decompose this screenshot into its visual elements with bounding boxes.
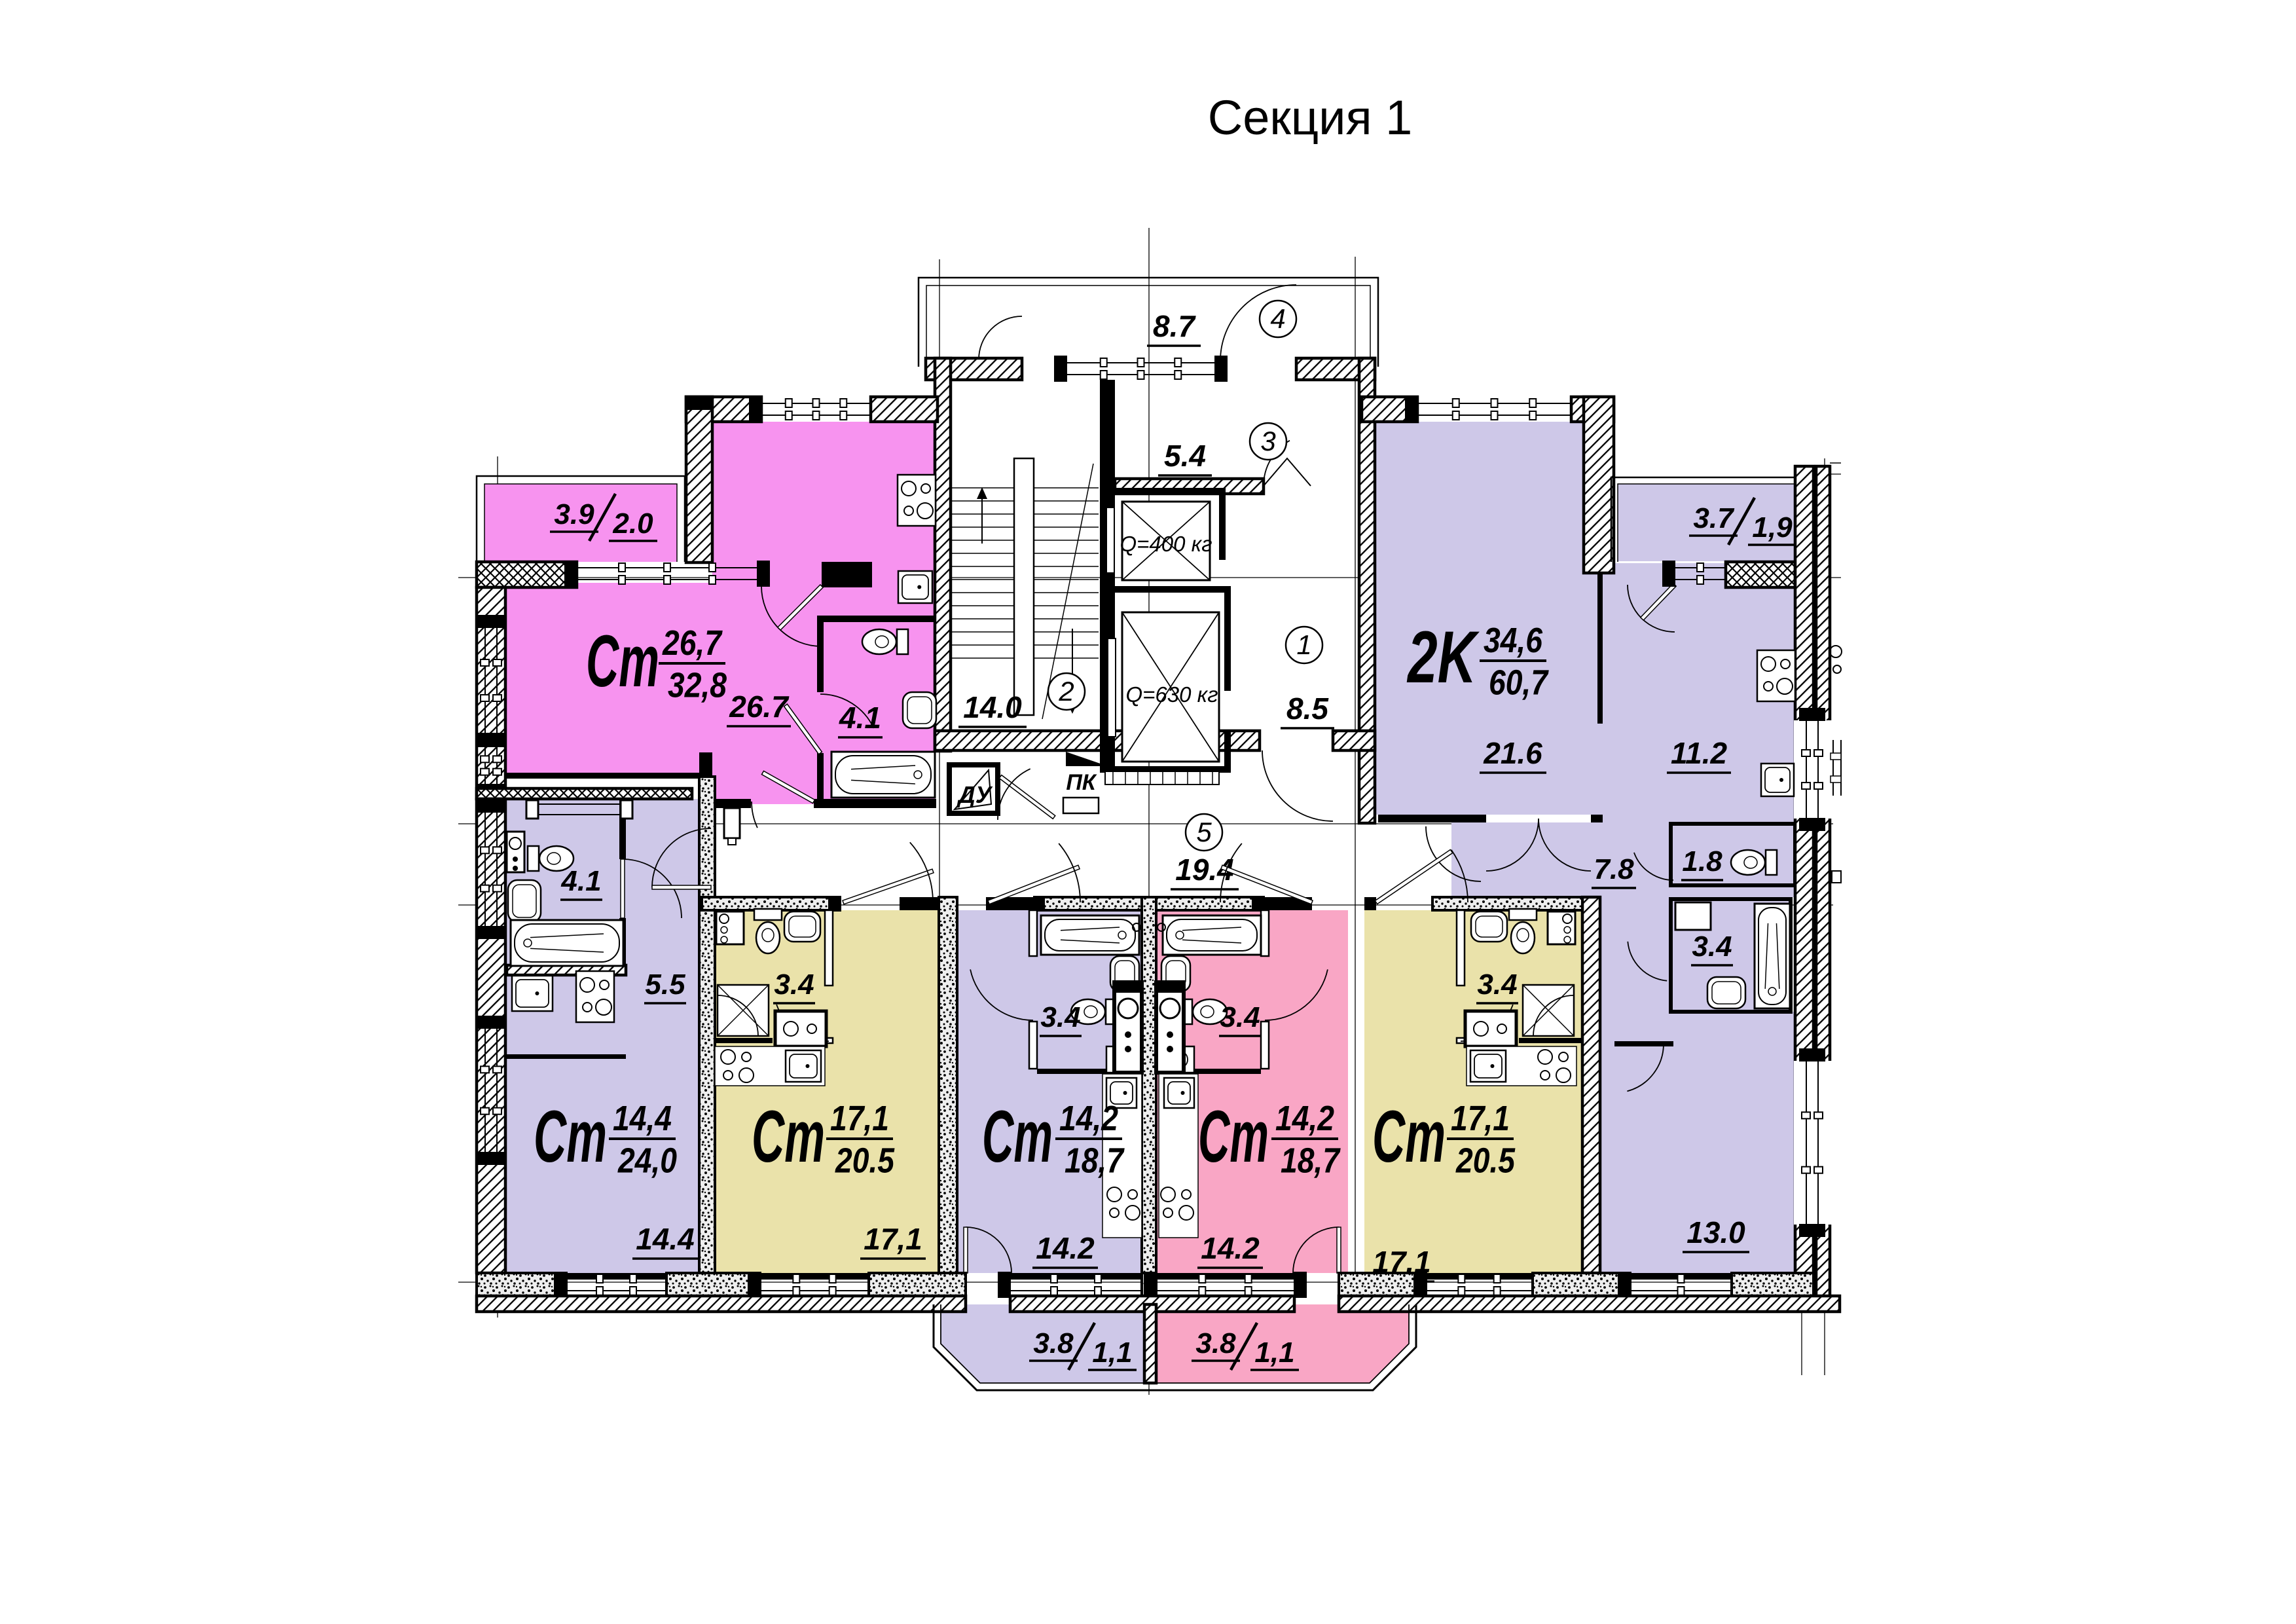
- svg-text:Ст: Ст: [982, 1096, 1053, 1177]
- svg-text:2K: 2K: [1407, 616, 1480, 698]
- svg-text:3.4: 3.4: [1477, 969, 1517, 1001]
- svg-text:26.7: 26.7: [729, 690, 790, 724]
- svg-text:Ст: Ст: [752, 1096, 825, 1177]
- svg-text:2.0: 2.0: [612, 507, 653, 540]
- svg-text:14.4: 14.4: [636, 1222, 695, 1256]
- svg-text:1,9: 1,9: [1752, 511, 1793, 544]
- svg-text:14,2: 14,2: [1275, 1099, 1334, 1138]
- svg-text:18,7: 18,7: [1065, 1141, 1125, 1180]
- svg-text:11.2: 11.2: [1671, 736, 1728, 770]
- svg-text:7.8: 7.8: [1594, 853, 1634, 885]
- svg-text:4: 4: [1270, 303, 1285, 334]
- svg-text:3.4: 3.4: [1692, 931, 1732, 963]
- svg-text:14,4: 14,4: [613, 1099, 672, 1138]
- svg-text:3.8: 3.8: [1033, 1327, 1074, 1359]
- svg-text:20.5: 20.5: [835, 1141, 895, 1180]
- svg-text:4.1: 4.1: [839, 701, 881, 735]
- svg-text:4.1: 4.1: [560, 865, 601, 897]
- svg-text:14.2: 14.2: [1201, 1231, 1260, 1265]
- svg-text:24,0: 24,0: [617, 1141, 677, 1180]
- svg-text:Секция 1: Секция 1: [1208, 90, 1412, 145]
- svg-text:Q=400 кг: Q=400 кг: [1120, 532, 1212, 556]
- svg-text:ПК: ПК: [1066, 770, 1097, 795]
- svg-text:2: 2: [1058, 676, 1074, 707]
- svg-text:Ст: Ст: [534, 1096, 607, 1177]
- svg-text:3.4: 3.4: [1220, 1001, 1260, 1033]
- svg-text:21.6: 21.6: [1483, 736, 1542, 770]
- svg-text:3.4: 3.4: [774, 969, 814, 1001]
- svg-text:Ст: Ст: [1372, 1096, 1446, 1177]
- svg-text:5.5: 5.5: [645, 969, 685, 1001]
- svg-text:14.2: 14.2: [1036, 1231, 1095, 1265]
- svg-text:5: 5: [1196, 817, 1212, 847]
- svg-text:13.0: 13.0: [1686, 1215, 1745, 1249]
- svg-text:Ст: Ст: [1198, 1096, 1269, 1177]
- svg-text:3.8: 3.8: [1195, 1327, 1236, 1359]
- svg-text:14,2: 14,2: [1059, 1099, 1118, 1138]
- svg-text:1,1: 1,1: [1254, 1337, 1294, 1369]
- svg-text:3: 3: [1260, 426, 1275, 456]
- svg-text:8.5: 8.5: [1286, 692, 1329, 726]
- svg-text:3.9: 3.9: [554, 498, 594, 530]
- svg-text:17,1: 17,1: [864, 1222, 922, 1256]
- svg-text:5.4: 5.4: [1164, 439, 1206, 473]
- svg-text:18,7: 18,7: [1281, 1141, 1341, 1180]
- svg-text:1,1: 1,1: [1092, 1337, 1132, 1369]
- svg-text:20.5: 20.5: [1455, 1141, 1516, 1180]
- svg-text:32,8: 32,8: [668, 665, 727, 705]
- svg-text:8.7: 8.7: [1153, 309, 1196, 343]
- svg-text:3.7: 3.7: [1693, 502, 1735, 534]
- svg-text:Q=630 кг: Q=630 кг: [1125, 682, 1218, 707]
- svg-text:1.8: 1.8: [1682, 845, 1722, 877]
- svg-text:3.4: 3.4: [1040, 1001, 1080, 1033]
- svg-text:60,7: 60,7: [1489, 663, 1550, 702]
- svg-text:14.0: 14.0: [963, 690, 1022, 724]
- svg-text:26,7: 26,7: [662, 623, 723, 663]
- svg-text:Ст: Ст: [586, 620, 659, 702]
- svg-text:17,1: 17,1: [1451, 1099, 1510, 1138]
- svg-text:34,6: 34,6: [1484, 621, 1543, 660]
- svg-text:1: 1: [1296, 629, 1311, 660]
- svg-text:ДУ: ДУ: [957, 781, 993, 808]
- svg-text:17,1: 17,1: [830, 1099, 889, 1138]
